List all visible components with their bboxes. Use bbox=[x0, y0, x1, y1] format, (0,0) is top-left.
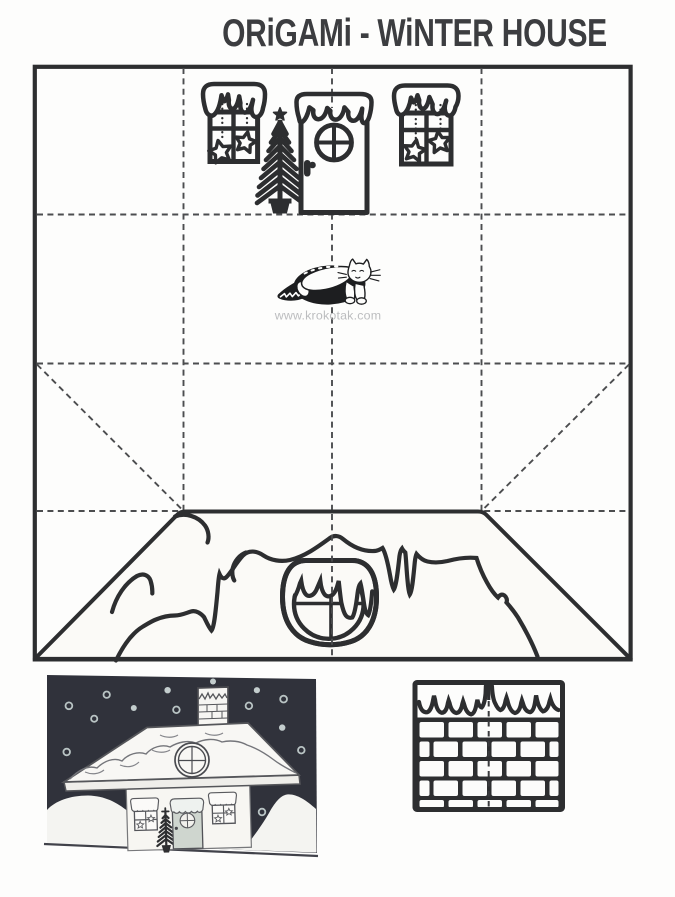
svg-text:www.krokotak.com: www.krokotak.com bbox=[274, 309, 381, 323]
